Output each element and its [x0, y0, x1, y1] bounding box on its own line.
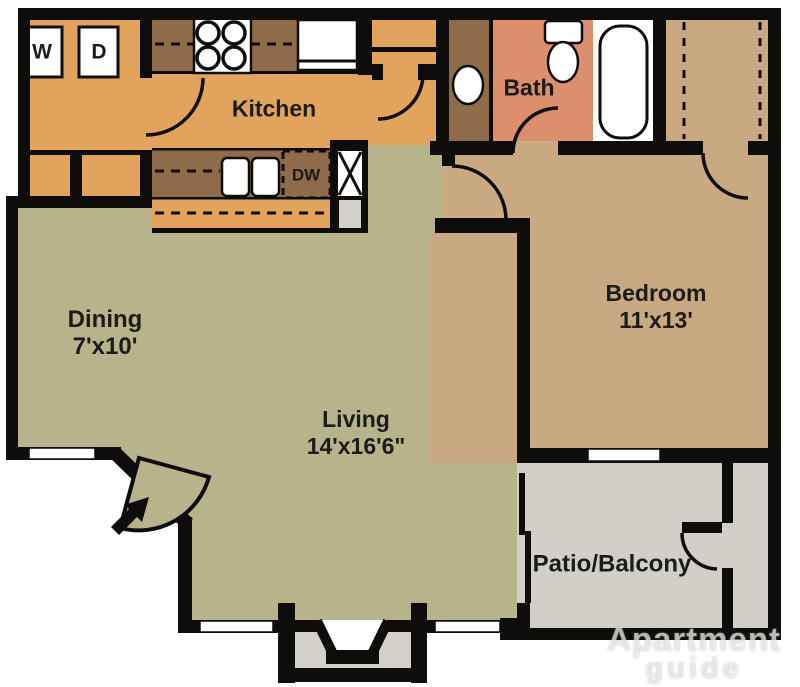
bedroom-dimensions: 11'x13' — [606, 307, 707, 334]
watermark: Apartment guide — [607, 627, 781, 682]
fireplace-wall-stub — [295, 620, 319, 632]
window-living-right — [435, 621, 500, 632]
wall-right — [768, 8, 781, 640]
dining-label: Dining 7'x10' — [68, 306, 143, 360]
kitchen-sink-basin — [222, 158, 249, 196]
living-dimensions: 14'x16'6" — [307, 433, 406, 460]
living-name: Living — [307, 406, 406, 433]
wall-counter-end — [358, 18, 372, 75]
vanity-divider-line — [489, 20, 493, 141]
wall-closet-south — [748, 141, 781, 155]
sliding-door-panel — [519, 473, 525, 535]
passage-floor — [367, 145, 442, 233]
window-living-left — [200, 621, 273, 632]
wall-kitchen-bath — [436, 12, 449, 148]
wall-living-bedroom — [517, 228, 530, 463]
walkin-closet-floor — [653, 18, 768, 143]
dishwasher-label: DW — [292, 162, 320, 189]
fireplace-back — [326, 650, 379, 664]
wall-laundry-kitchen-lower — [140, 150, 152, 208]
wall-passage-jamb — [442, 148, 455, 166]
wall-hall-stub — [435, 218, 530, 233]
patio-label: Patio/Balcony — [533, 551, 692, 578]
floor-plan: W D Kitchen DW Bath Dining 7'x10' Living… — [0, 0, 800, 687]
wall-entry-vertical — [178, 517, 192, 633]
dining-name: Dining — [68, 306, 143, 333]
bedroom-label: Bedroom 11'x13' — [606, 280, 707, 334]
dryer-label: D — [91, 39, 106, 66]
wall-tub-closet — [653, 12, 666, 148]
kitchen-sink-basin — [252, 158, 279, 196]
bathtub — [600, 26, 647, 138]
pantry-shelf-line — [372, 47, 436, 52]
window-dining — [29, 448, 95, 459]
fireplace-wall-stub — [387, 620, 411, 632]
wall-top — [18, 8, 781, 20]
wall-storage-upper — [722, 463, 733, 523]
counter-edge-line — [152, 71, 358, 74]
closet-front-line — [18, 150, 140, 155]
watermark-line2: guide — [607, 656, 781, 682]
storage-door-leaf — [682, 522, 722, 533]
pantry-jamb — [372, 64, 383, 80]
wall-bath-south-right — [558, 141, 703, 155]
toilet-tank — [545, 21, 582, 43]
counter-edge-line — [152, 148, 330, 151]
utility-shelf — [339, 200, 361, 228]
window-bedroom — [588, 449, 660, 461]
living-label: Living 14'x16'6" — [307, 406, 406, 460]
wall-left-upper — [18, 8, 30, 208]
bedroom-name: Bedroom — [606, 280, 707, 307]
bath-label: Bath — [503, 75, 554, 102]
wall-left-lower — [6, 196, 18, 460]
washer-label: W — [32, 39, 52, 66]
sliding-door-panel — [525, 531, 531, 603]
kitchen-label: Kitchen — [232, 96, 316, 123]
dining-dimensions: 7'x10' — [68, 333, 143, 360]
pantry-jamb — [418, 64, 436, 80]
bathroom-sink — [453, 66, 483, 104]
closet-divider — [70, 155, 82, 198]
wall-laundry-step — [18, 196, 152, 208]
wall-laundry-kitchen-upper — [140, 18, 152, 78]
fireplace-front — [278, 668, 427, 682]
